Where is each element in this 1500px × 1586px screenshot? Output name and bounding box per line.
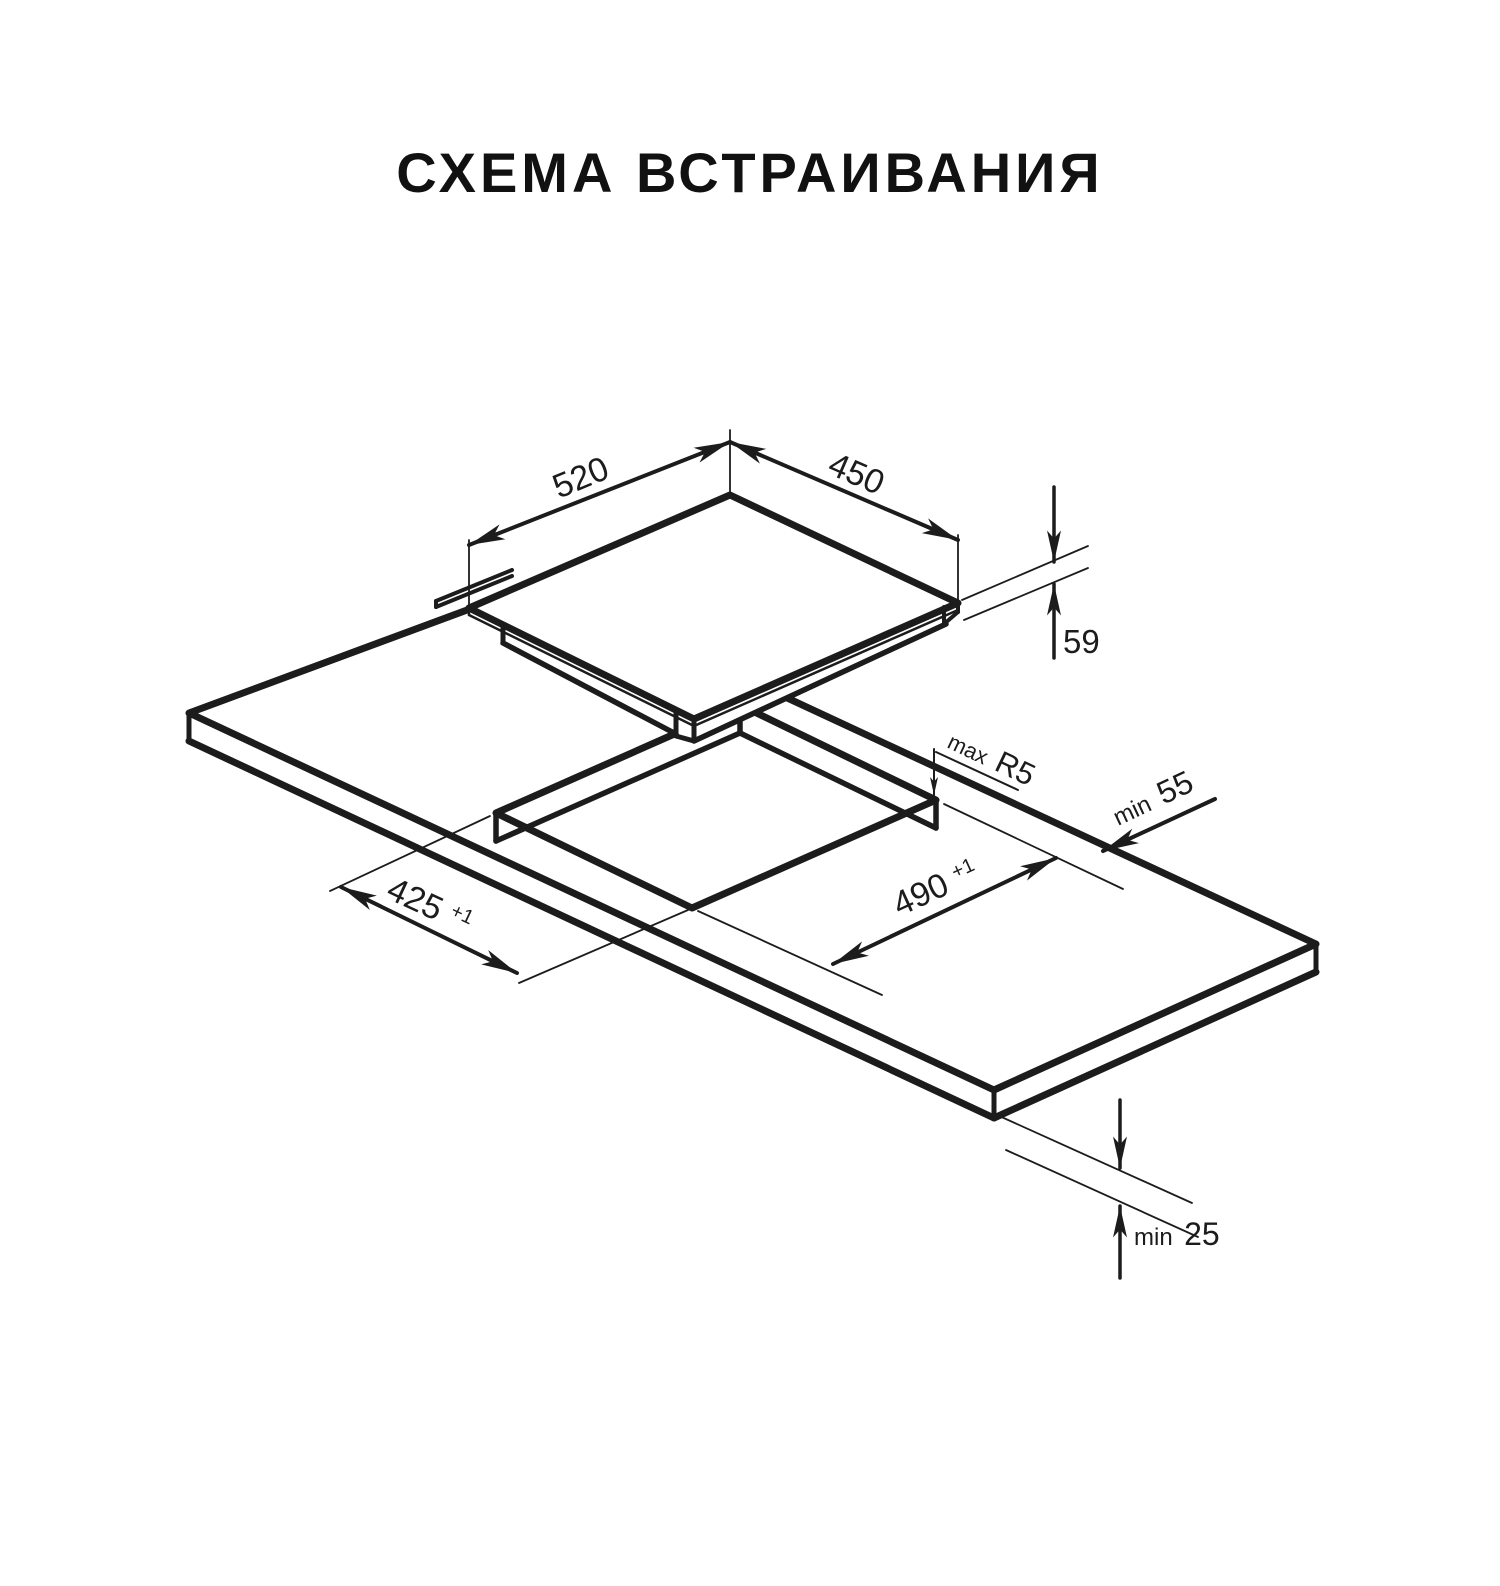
dimension-min-25: min 25 (997, 1100, 1220, 1278)
installation-diagram: 520 450 59 max R5 (0, 0, 1500, 1586)
dim-450-label: 450 (823, 445, 890, 502)
page: СХЕМА ВСТРАИВАНИЯ (0, 0, 1500, 1586)
dim-59-label: 59 (1063, 623, 1100, 660)
dim-min-25-label: min 25 (1134, 1216, 1220, 1252)
dim-min-55-label: min 55 (1106, 763, 1199, 832)
dim-520-label: 520 (547, 449, 614, 506)
dimension-59: 59 (962, 487, 1100, 660)
